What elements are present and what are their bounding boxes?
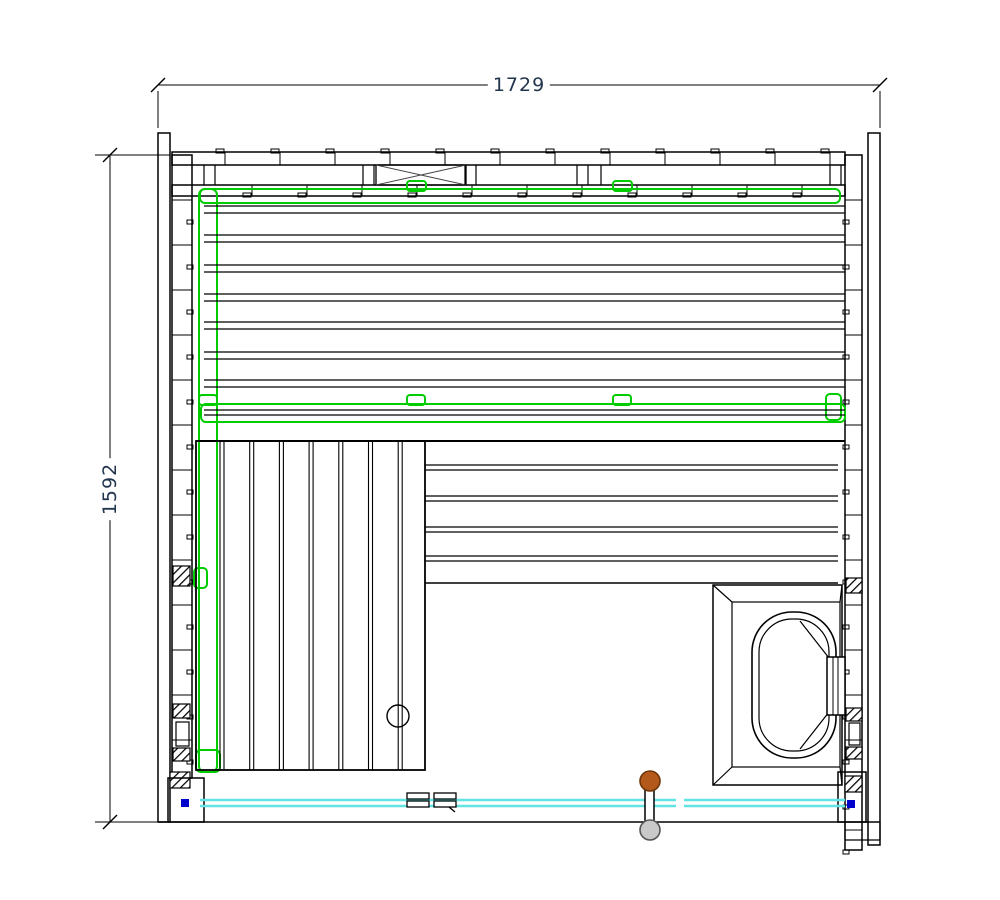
right-board-joints bbox=[843, 625, 849, 629]
rail-end bbox=[826, 394, 841, 420]
heater-chamfer bbox=[800, 712, 829, 749]
right-board-joints bbox=[843, 535, 849, 539]
right-board-joints bbox=[843, 400, 849, 404]
heater-inner bbox=[732, 602, 840, 767]
glass-anchor-blue bbox=[847, 800, 855, 808]
wall-left-outer bbox=[158, 133, 170, 822]
heater-bevel bbox=[713, 767, 732, 785]
right-board-joints bbox=[843, 445, 849, 449]
bench-rail-mid bbox=[201, 404, 845, 422]
right-board-joints bbox=[843, 760, 849, 764]
drawing-shapes bbox=[95, 78, 887, 854]
insulation-hatch bbox=[846, 708, 862, 721]
vent-window bbox=[176, 722, 189, 746]
wall-right-inner bbox=[845, 155, 862, 850]
insulation-hatch bbox=[170, 772, 190, 788]
door-hinge bbox=[407, 793, 429, 799]
heater-bracket bbox=[827, 657, 845, 715]
insulation-hatch bbox=[845, 776, 862, 792]
right-board-joints bbox=[843, 310, 849, 314]
insulation-hatch bbox=[846, 747, 862, 759]
wall-left-inner bbox=[172, 155, 192, 778]
insulation-hatch bbox=[173, 566, 190, 586]
door-hinge bbox=[434, 793, 456, 799]
dimension-height-label: 1592 bbox=[99, 458, 121, 520]
hinge-hook bbox=[449, 807, 455, 812]
door-hinge bbox=[434, 801, 456, 807]
right-board-joints bbox=[843, 220, 849, 224]
heater-body-inner bbox=[759, 619, 829, 751]
door-hinge bbox=[407, 801, 429, 807]
bench-step bbox=[196, 441, 425, 770]
door-handle-knob-inside bbox=[640, 771, 660, 791]
right-board-joints bbox=[843, 490, 849, 494]
bench-rail-left bbox=[199, 189, 217, 772]
wall-top-row1 bbox=[172, 152, 845, 165]
insulation-hatch bbox=[173, 704, 190, 718]
wall-top-row2 bbox=[172, 185, 845, 196]
door-handle-knob-outside bbox=[640, 820, 660, 840]
vent-window bbox=[849, 723, 860, 745]
insulation-hatch bbox=[846, 578, 862, 593]
wall-right-outer bbox=[868, 133, 880, 845]
sauna-floorplan-page: 1729 1592 bbox=[0, 0, 1000, 900]
sauna-plan-drawing bbox=[0, 0, 1000, 900]
heater-chamfer bbox=[800, 621, 829, 658]
glass-anchor-blue bbox=[181, 799, 189, 807]
dimension-width-label: 1729 bbox=[488, 74, 550, 96]
insulation-hatch bbox=[173, 748, 190, 761]
heater-bevel bbox=[713, 585, 732, 602]
